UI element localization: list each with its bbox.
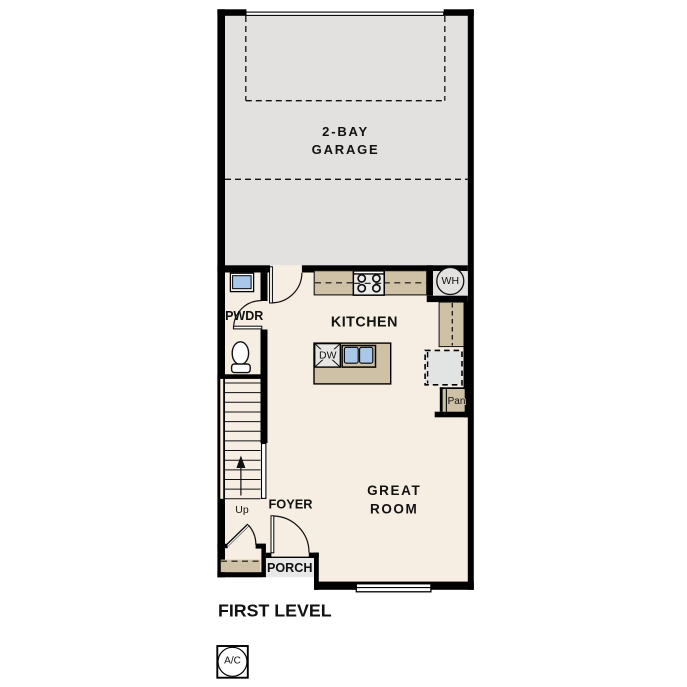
svg-text:GREAT: GREAT <box>367 483 421 498</box>
svg-text:FOYER: FOYER <box>268 497 312 512</box>
svg-text:WH: WH <box>442 275 460 287</box>
svg-text:A/C: A/C <box>224 656 241 667</box>
svg-text:FIRST LEVEL: FIRST LEVEL <box>218 601 332 621</box>
svg-text:PWDR: PWDR <box>225 309 263 323</box>
svg-text:ROOM: ROOM <box>370 501 418 516</box>
svg-text:DW: DW <box>319 350 337 362</box>
svg-text:PORCH: PORCH <box>267 561 312 575</box>
svg-text:2-BAY: 2-BAY <box>322 124 369 139</box>
svg-text:Pan: Pan <box>448 396 466 407</box>
svg-text:KITCHEN: KITCHEN <box>331 314 398 330</box>
svg-text:Up: Up <box>235 504 249 516</box>
svg-text:GARAGE: GARAGE <box>312 142 380 157</box>
